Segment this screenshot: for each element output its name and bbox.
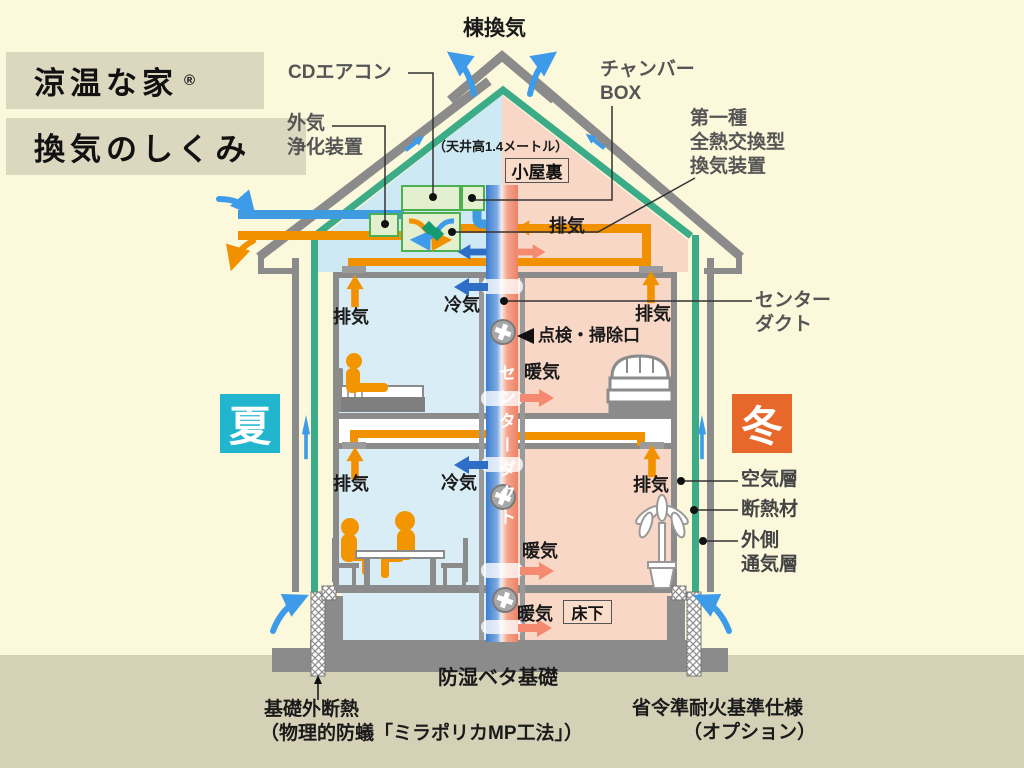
registered-mark: ® (184, 72, 195, 89)
warm-air-label-underfloor: 暖気 (517, 603, 553, 626)
exhaust-label-2f-left: 排気 (333, 306, 369, 329)
brand-subtitle: 換気のしくみ (6, 118, 306, 175)
fire-spec-label: 省令準耐火基準仕様 (632, 697, 803, 721)
center-duct-label: センター ダクト (755, 289, 831, 337)
fire-spec-sub-label: （オプション） (683, 721, 816, 745)
inspection-port-label: 点検・掃除口 (538, 325, 640, 346)
attic-label: 小屋裏 (505, 158, 569, 183)
brand-title-text: 涼温な家 (34, 58, 178, 103)
foundation-label: 防湿ベタ基礎 (438, 666, 558, 691)
base-insulation-label: 基礎外断熱 (264, 698, 359, 722)
bed-empty (608, 356, 672, 412)
foundation-insulation-right (687, 592, 701, 676)
heat-exchanger-label: 第一種 全熱交換型 換気装置 (690, 107, 785, 178)
brand-subtitle-text: 換気のしくみ (34, 124, 251, 169)
foundation-insulation-left (311, 592, 325, 676)
exhaust-out-arrow (233, 241, 253, 264)
exhaust-label-attic: 排気 (549, 215, 585, 238)
exhaust-label-1f-right: 排気 (633, 474, 669, 497)
summer-badge: 夏 (220, 394, 280, 453)
diagram-canvas: 涼温な家® 換気のしくみ 棟換気 CDエアコン 外気 浄化装置 チャンバー BO… (0, 0, 1024, 768)
table (356, 551, 444, 558)
insulation-label: 断熱材 (741, 498, 798, 522)
base-insulation-sub-label: （物理的防蟻「ミラポリカMP工法」） (260, 722, 583, 746)
intake-arrow (219, 199, 251, 211)
foundation-air-arrow-left (273, 598, 302, 631)
brand-title: 涼温な家® (6, 52, 264, 109)
chamber-box-label: チャンバー BOX (600, 58, 695, 106)
ridge-vent-label: 棟換気 (463, 16, 526, 42)
underfloor-label: 床下 (563, 600, 612, 624)
winter-badge: 冬 (732, 394, 792, 453)
center-duct-vertical-text: センターダクト (493, 364, 518, 579)
exhaust-label-2f-right: 排気 (635, 303, 671, 326)
cool-air-label-1f: 冷気 (441, 472, 477, 495)
ceiling-height-note: （天井高1.4メートル） (433, 139, 568, 155)
air-purifier-label: 外気 浄化装置 (287, 112, 363, 160)
exhaust-label-1f-left: 排気 (333, 473, 369, 496)
cool-air-label-2f: 冷気 (444, 294, 480, 317)
air-layer-label: 空気層 (741, 468, 798, 492)
cd-aircon-label: CDエアコン (288, 61, 391, 85)
warm-air-label-1f: 暖気 (522, 540, 558, 563)
warm-air-label-2f: 暖気 (524, 361, 560, 384)
foundation-air-arrow-right (700, 598, 729, 631)
outer-vent-layer-label: 外側 通気層 (741, 529, 798, 577)
